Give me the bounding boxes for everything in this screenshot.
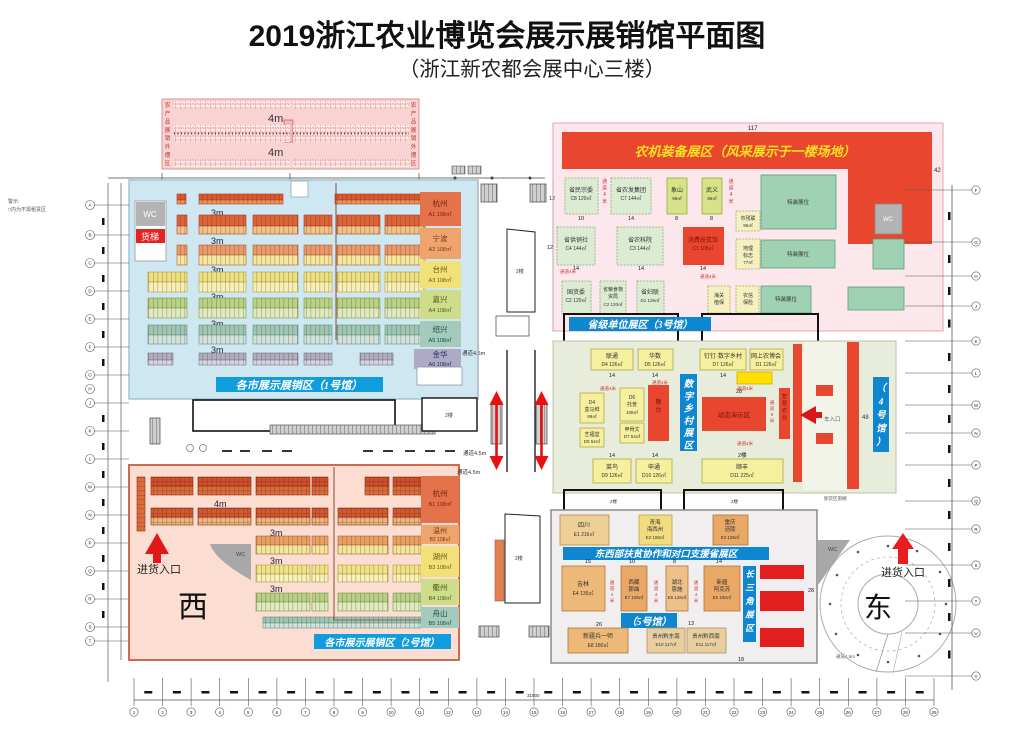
svg-text:省级单位展区（3号馆）: 省级单位展区（3号馆） (588, 319, 693, 331)
svg-text:□内为不需租赁区: □内为不需租赁区 (8, 206, 46, 213)
svg-text:T: T (89, 639, 92, 644)
svg-text:22: 22 (731, 710, 737, 715)
svg-text:盒马鲜: 盒马鲜 (584, 406, 599, 413)
svg-text:钉钉·数字乡村: 钉钉·数字乡村 (704, 352, 742, 360)
svg-text:G: G (974, 240, 978, 245)
svg-text:保险: 保险 (743, 299, 753, 306)
svg-text:省农发集团: 省农发集团 (616, 186, 646, 194)
svg-text:通道4米: 通道4米 (700, 273, 717, 280)
svg-text:省供销社: 省供销社 (564, 236, 588, 244)
svg-text:A3 108㎡: A3 108㎡ (429, 276, 452, 284)
svg-text:T: T (975, 599, 978, 604)
svg-text:西藏: 西藏 (628, 578, 640, 586)
svg-text:K: K (974, 339, 977, 344)
svg-text:甲骨文: 甲骨文 (624, 426, 639, 433)
svg-text:A2 108㎡: A2 108㎡ (429, 245, 452, 253)
svg-text:B: B (88, 233, 91, 238)
svg-text:E11 117㎡: E11 117㎡ (696, 641, 717, 647)
svg-text:M: M (88, 485, 92, 490)
svg-text:S: S (974, 563, 977, 568)
svg-text:3m: 3m (270, 556, 283, 566)
svg-text:14: 14 (638, 266, 644, 272)
svg-text:8: 8 (673, 559, 676, 565)
svg-text:金华: 金华 (433, 349, 448, 359)
svg-text:特装展位: 特装展位 (787, 198, 810, 206)
svg-text:117: 117 (748, 126, 758, 132)
svg-text:西: 西 (178, 591, 208, 624)
svg-text:通道4米: 通道4米 (728, 178, 733, 205)
svg-text:N: N (88, 513, 91, 518)
svg-text:27: 27 (874, 710, 880, 715)
svg-text:省粮食物: 省粮食物 (603, 286, 623, 293)
svg-text:N: N (974, 431, 977, 436)
svg-text:12: 12 (549, 196, 555, 202)
svg-text:99㎡: 99㎡ (587, 413, 597, 419)
svg-text:E2 108㎡: E2 108㎡ (646, 534, 665, 540)
svg-text:重庆: 重庆 (724, 518, 736, 526)
svg-text:新疆: 新疆 (716, 578, 728, 586)
svg-text:贵州黔西南: 贵州黔西南 (692, 632, 720, 640)
svg-text:14: 14 (700, 266, 706, 272)
svg-text:E8 180㎡: E8 180㎡ (588, 642, 609, 649)
svg-text:12: 12 (446, 710, 452, 715)
svg-text:农信: 农信 (743, 292, 753, 299)
svg-text:28: 28 (903, 710, 909, 715)
svg-text:B1 108㎡: B1 108㎡ (429, 500, 452, 508)
svg-text:动态演示区: 动态演示区 (718, 410, 751, 419)
svg-text:F: F (89, 345, 92, 350)
svg-text:28: 28 (808, 588, 814, 594)
svg-text:S: S (88, 625, 91, 630)
svg-text:绍兴: 绍兴 (433, 324, 448, 334)
svg-text:舟山: 舟山 (433, 608, 448, 618)
svg-text:象山: 象山 (671, 186, 683, 194)
svg-text:13: 13 (688, 621, 694, 627)
svg-text:D10 126㎡: D10 126㎡ (642, 472, 666, 479)
svg-text:D5 126㎡: D5 126㎡ (644, 361, 665, 368)
svg-text:省民宗委: 省民宗委 (569, 186, 593, 194)
svg-text:A1 108㎡: A1 108㎡ (429, 210, 452, 218)
svg-text:10: 10 (578, 216, 584, 222)
svg-text:衢州: 衢州 (433, 582, 448, 592)
svg-text:通道4米: 通道4米 (652, 379, 669, 386)
svg-text:C8 120㎡: C8 120㎡ (570, 195, 591, 202)
svg-text:108㎡: 108㎡ (626, 409, 639, 415)
svg-text:B2 108㎡: B2 108㎡ (430, 536, 451, 543)
svg-text:V: V (974, 674, 977, 679)
svg-text:96㎡: 96㎡ (672, 195, 682, 201)
svg-text:K: K (88, 429, 91, 434)
svg-text:19: 19 (646, 710, 652, 715)
svg-text:D6: D6 (629, 395, 636, 401)
svg-text:D7 54㎡: D7 54㎡ (624, 433, 641, 439)
svg-text:14: 14 (652, 453, 658, 459)
svg-text:E4 135㎡: E4 135㎡ (573, 590, 594, 597)
svg-text:C2 120㎡: C2 120㎡ (565, 297, 586, 304)
svg-text:2楼: 2楼 (738, 451, 747, 459)
svg-text:那曲: 那曲 (628, 585, 639, 593)
svg-text:通道4.5m: 通道4.5m (836, 653, 855, 660)
svg-text:D4 126㎡: D4 126㎡ (601, 361, 622, 368)
svg-text:P: P (88, 541, 91, 546)
svg-text:29: 29 (931, 710, 937, 715)
svg-text:C7 144㎡: C7 144㎡ (620, 195, 641, 202)
svg-text:24: 24 (789, 710, 795, 715)
svg-text:阿克苏: 阿克苏 (714, 585, 731, 593)
svg-text:8: 8 (675, 216, 678, 222)
svg-text:B4 108㎡: B4 108㎡ (429, 594, 452, 602)
svg-text:海关: 海关 (714, 292, 724, 299)
svg-text:23: 23 (760, 710, 766, 715)
svg-text:消费扶贫馆: 消费扶贫馆 (688, 236, 718, 244)
svg-text:M: M (974, 403, 978, 408)
svg-text:17: 17 (589, 710, 595, 715)
svg-text:31500: 31500 (527, 693, 540, 698)
svg-text:12: 12 (547, 245, 553, 251)
svg-text:国资委: 国资委 (567, 288, 585, 296)
svg-text:地理: 地理 (743, 245, 753, 252)
svg-text:各市展示展销区（1号馆）: 各市展示展销区（1号馆） (236, 379, 363, 392)
svg-text:D9 126㎡: D9 126㎡ (601, 472, 622, 479)
svg-text:13: 13 (474, 710, 480, 715)
svg-text:（浙江新农都会展中心三楼）: （浙江新农都会展中心三楼） (399, 58, 666, 81)
svg-text:18: 18 (738, 657, 744, 663)
svg-text:21: 21 (703, 710, 709, 715)
svg-text:C1 108㎡: C1 108㎡ (692, 245, 713, 252)
svg-text:车入口: 车入口 (824, 415, 841, 423)
svg-text:省农科院: 省农科院 (628, 236, 652, 244)
svg-text:A: A (88, 203, 91, 208)
svg-text:G: G (88, 373, 92, 378)
svg-text:联通: 联通 (606, 352, 618, 360)
svg-text:16: 16 (560, 710, 566, 715)
svg-text:J: J (89, 401, 91, 406)
svg-text:特装展位: 特装展位 (787, 250, 810, 258)
svg-text:特装展位: 特装展位 (775, 295, 798, 303)
svg-text:B5 108㎡: B5 108㎡ (429, 619, 452, 627)
svg-text:14: 14 (609, 453, 615, 459)
svg-text:宁波: 宁波 (433, 233, 448, 243)
svg-text:11: 11 (417, 710, 422, 715)
svg-text:Q: Q (88, 569, 92, 574)
svg-text:湖州: 湖州 (433, 552, 448, 561)
svg-text:25: 25 (817, 710, 823, 715)
svg-text:A4 108㎡: A4 108㎡ (429, 306, 452, 314)
svg-text:D4: D4 (589, 400, 596, 406)
svg-text:通道4米: 通道4米 (602, 178, 607, 205)
svg-text:WC: WC (236, 552, 245, 558)
svg-text:台州: 台州 (433, 264, 448, 274)
svg-text:4m: 4m (214, 499, 227, 509)
svg-text:进货入口: 进货入口 (881, 565, 925, 579)
svg-text:D7 126㎡: D7 126㎡ (712, 361, 733, 368)
svg-text:4m: 4m (268, 147, 283, 159)
svg-text:青海: 青海 (649, 518, 661, 526)
svg-text:J: J (975, 304, 977, 309)
svg-text:杭州: 杭州 (433, 198, 448, 208)
svg-text:2楼: 2楼 (610, 498, 618, 505)
svg-text:2楼: 2楼 (516, 268, 524, 275)
svg-text:14: 14 (628, 216, 634, 222)
svg-text:嘉兴: 嘉兴 (433, 294, 448, 304)
svg-text:货梯: 货梯 (141, 231, 159, 242)
svg-text:H: H (88, 387, 91, 392)
svg-text:托普: 托普 (627, 401, 637, 408)
svg-text:2019浙江农业博览会展示展销馆平面图: 2019浙江农业博览会展示展销馆平面图 (249, 19, 766, 53)
svg-text:植保: 植保 (714, 299, 724, 306)
svg-text:96㎡: 96㎡ (707, 195, 717, 201)
svg-text:14: 14 (503, 710, 509, 715)
svg-text:杭州: 杭州 (433, 488, 448, 498)
svg-text:东: 东 (864, 592, 892, 624)
svg-text:A5 108㎡: A5 108㎡ (429, 336, 452, 344)
svg-text:E3 108㎡: E3 108㎡ (721, 534, 740, 540)
svg-text:Q: Q (974, 499, 978, 504)
svg-text:WC: WC (828, 547, 837, 553)
svg-text:E10 117㎡: E10 117㎡ (656, 641, 677, 647)
svg-text:E5 180㎡: E5 180㎡ (713, 594, 732, 600)
svg-text:F: F (975, 188, 978, 193)
svg-text:D11 225㎡: D11 225㎡ (730, 472, 754, 479)
svg-text:顺丰: 顺丰 (736, 463, 748, 471)
svg-text:26: 26 (596, 622, 602, 628)
svg-text:8: 8 (710, 216, 713, 222)
svg-text:恩施: 恩施 (671, 585, 683, 593)
svg-text:新疆兵一师: 新疆兵一师 (583, 632, 613, 640)
svg-text:通道4米: 通道4米 (737, 385, 754, 392)
svg-text:警示:: 警示: (8, 198, 19, 205)
svg-text:20: 20 (674, 710, 680, 715)
svg-text:P: P (974, 463, 977, 468)
svg-text:E: E (88, 317, 91, 322)
svg-text:农机装备展区（风采展示于一楼场地）: 农机装备展区（风采展示于一楼场地） (634, 144, 855, 159)
svg-text:通道4米: 通道4米 (600, 385, 617, 392)
svg-text:WC: WC (143, 210, 157, 219)
svg-text:涪陵: 涪陵 (724, 525, 736, 533)
svg-text:3m: 3m (270, 584, 283, 594)
svg-text:通道4.5m: 通道4.5m (457, 468, 481, 476)
svg-text:申通: 申通 (648, 463, 660, 471)
svg-text:42: 42 (934, 168, 941, 174)
svg-text:H: H (974, 274, 977, 279)
svg-text:吉林: 吉林 (577, 580, 589, 588)
svg-text:48: 48 (862, 415, 869, 421)
svg-text:长三角展区: 长三角展区 (744, 569, 755, 633)
svg-text:2楼: 2楼 (515, 555, 523, 562)
svg-text:华数: 华数 (649, 352, 661, 360)
svg-text:D8 54㎡: D8 54㎡ (584, 438, 601, 444)
svg-text:26: 26 (846, 710, 852, 715)
svg-text:14: 14 (720, 373, 726, 379)
svg-text:10: 10 (629, 559, 635, 565)
svg-text:（5号馆）: （5号馆） (627, 616, 672, 628)
svg-text:4m: 4m (268, 113, 283, 125)
svg-text:E1 216㎡: E1 216㎡ (574, 531, 595, 538)
svg-text:WC: WC (883, 217, 894, 223)
svg-text:U: U (974, 631, 977, 636)
svg-text:菜鸟: 菜鸟 (606, 463, 618, 471)
svg-text:市残联: 市残联 (740, 215, 755, 222)
svg-text:通道4米: 通道4米 (560, 268, 577, 275)
svg-text:15: 15 (585, 559, 591, 565)
svg-text:15: 15 (531, 710, 537, 715)
svg-text:10: 10 (389, 710, 395, 715)
svg-text:通道4.5m: 通道4.5m (462, 349, 486, 357)
svg-text:C4 144㎡: C4 144㎡ (565, 245, 586, 252)
svg-text:四川: 四川 (578, 522, 590, 529)
svg-text:卸货区雨棚: 卸货区雨棚 (824, 495, 847, 502)
svg-text:资局: 资局 (608, 293, 618, 300)
svg-text:96㎡: 96㎡ (743, 222, 753, 228)
svg-text:海西州: 海西州 (647, 525, 664, 533)
svg-text:进货入口: 进货入口 (137, 562, 181, 576)
svg-text:14: 14 (609, 373, 615, 379)
svg-text:E6 126㎡: E6 126㎡ (668, 594, 687, 600)
svg-text:C2 120㎡: C2 120㎡ (603, 301, 623, 307)
svg-text:B3 108㎡: B3 108㎡ (429, 563, 452, 571)
svg-text:通道4.5m: 通道4.5m (463, 449, 487, 457)
svg-text:D1 126㎡: D1 126㎡ (755, 361, 776, 368)
svg-text:网上农博会: 网上农博会 (751, 352, 781, 360)
svg-text:2楼: 2楼 (731, 498, 739, 505)
svg-text:14: 14 (716, 559, 722, 565)
svg-text:武义: 武义 (706, 186, 718, 194)
svg-text:3m: 3m (211, 236, 224, 246)
svg-text:各市展示展销区（2号馆）: 各市展示展销区（2号馆） (325, 637, 440, 649)
svg-text:18: 18 (617, 710, 623, 715)
svg-text:温州: 温州 (433, 526, 447, 535)
svg-text:省妇联: 省妇联 (641, 288, 659, 296)
svg-text:标志: 标志 (743, 252, 753, 259)
svg-text:艺福堂: 艺福堂 (584, 431, 599, 438)
svg-text:2楼: 2楼 (445, 412, 453, 419)
svg-text:贵州黔东南: 贵州黔东南 (652, 632, 680, 640)
svg-text:通道4米: 通道4米 (737, 440, 754, 447)
svg-text:E7 108㎡: E7 108㎡ (625, 594, 644, 600)
svg-text:湖北: 湖北 (671, 578, 683, 586)
svg-text:14: 14 (652, 373, 658, 379)
svg-text:D1 126㎡: D1 126㎡ (640, 297, 660, 303)
svg-text:77㎡: 77㎡ (743, 259, 753, 265)
svg-text:C3 144㎡: C3 144㎡ (629, 245, 650, 252)
